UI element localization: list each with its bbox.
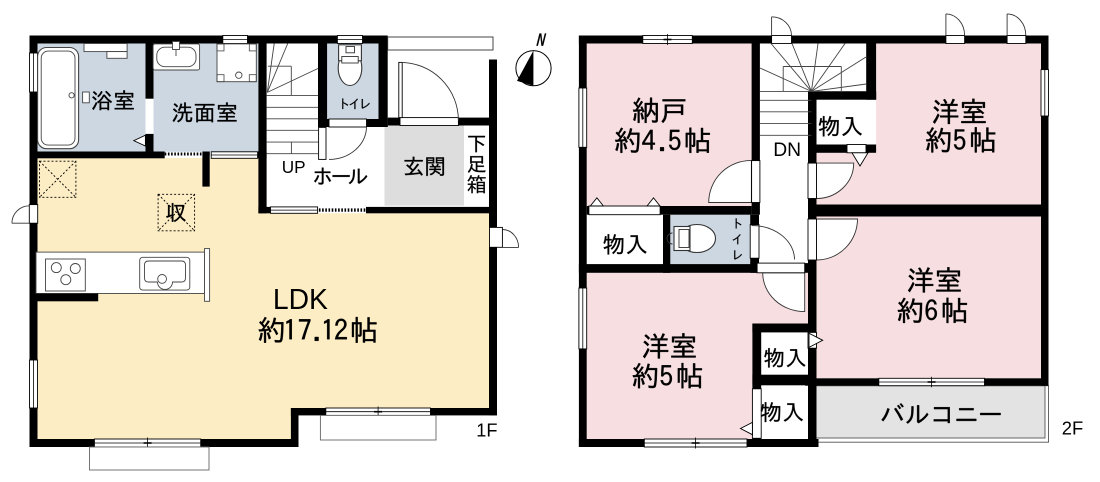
svg-text:UP: UP: [282, 157, 306, 177]
svg-text:LDK: LDK: [273, 283, 328, 315]
svg-text:DN: DN: [773, 140, 801, 161]
svg-text:1F: 1F: [476, 421, 497, 441]
svg-text:2F: 2F: [1062, 417, 1083, 438]
